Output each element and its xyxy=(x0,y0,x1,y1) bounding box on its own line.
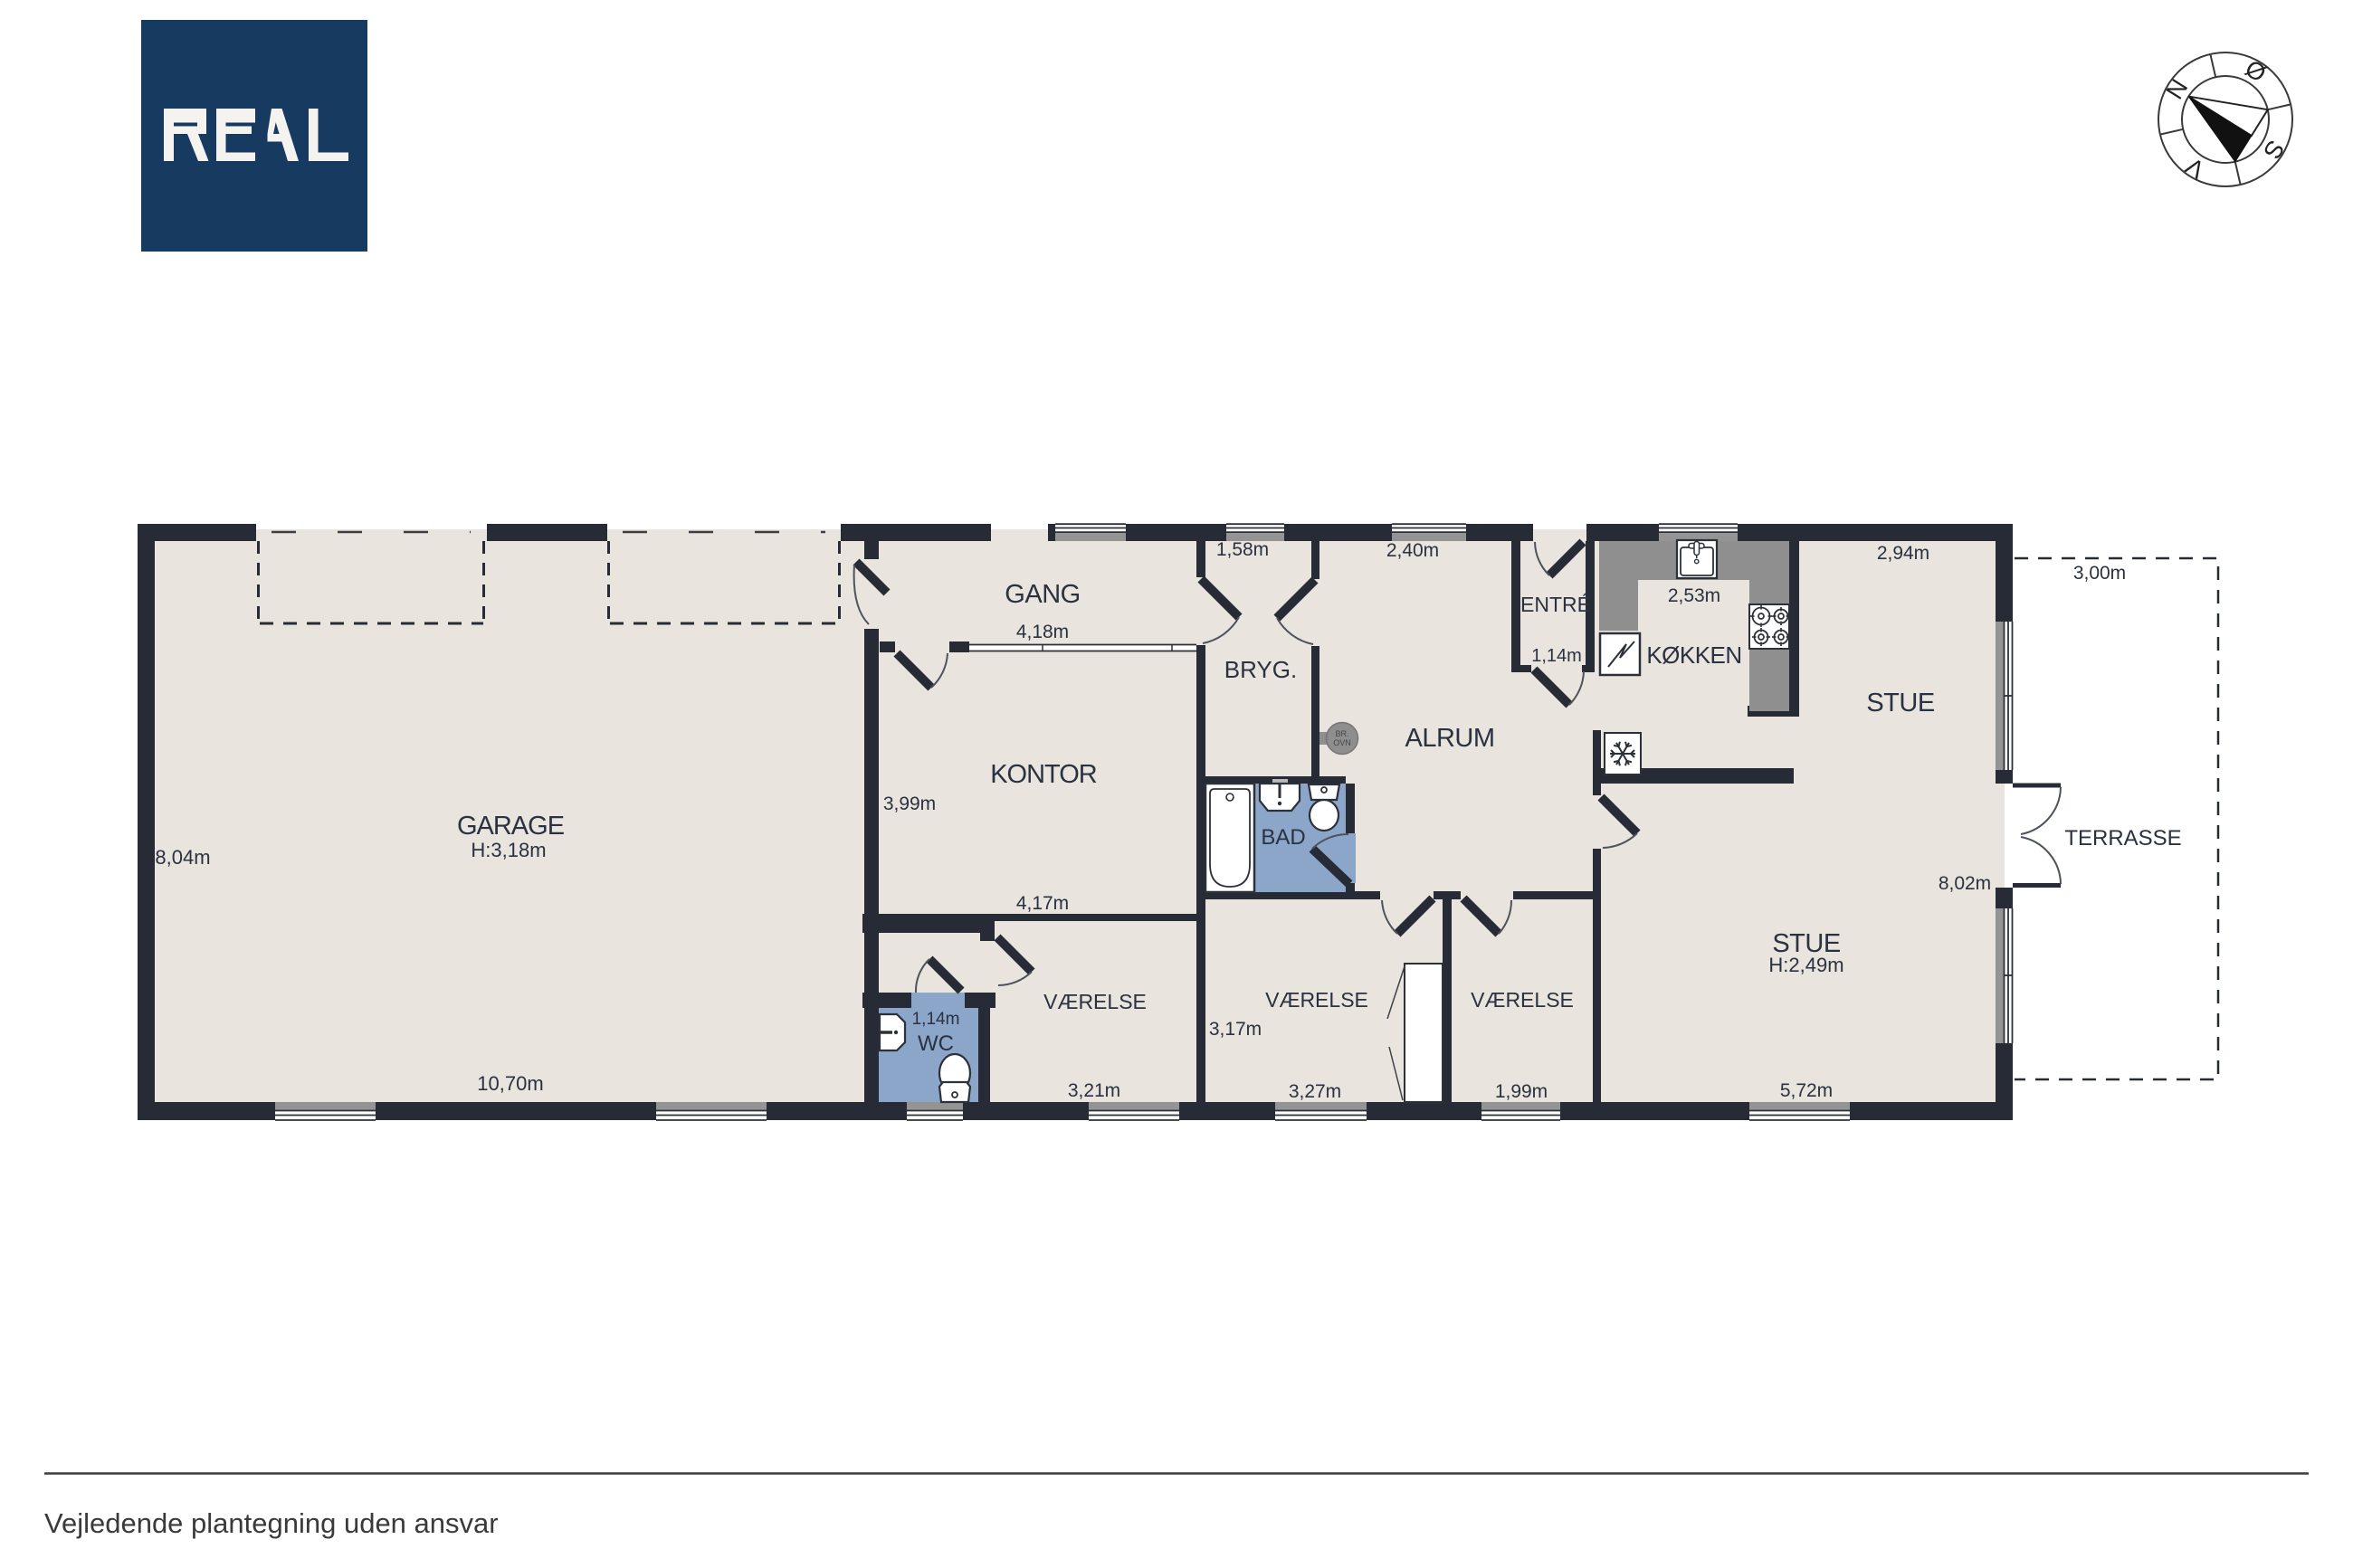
svg-text:3,17m: 3,17m xyxy=(1209,1019,1262,1040)
svg-text:H:3,18m: H:3,18m xyxy=(471,839,546,861)
svg-text:5,72m: 5,72m xyxy=(1780,1080,1833,1101)
svg-text:H:2,49m: H:2,49m xyxy=(1768,954,1843,976)
svg-text:1,14m: 1,14m xyxy=(912,1010,960,1029)
svg-text:STUE: STUE xyxy=(1866,689,1935,717)
svg-text:3,00m: 3,00m xyxy=(2073,563,2126,584)
svg-text:BAD: BAD xyxy=(1261,825,1305,850)
svg-text:KØKKEN: KØKKEN xyxy=(1646,641,1741,669)
svg-text:8,02m: 8,02m xyxy=(1939,873,1991,894)
svg-text:3,21m: 3,21m xyxy=(1068,1080,1120,1101)
svg-text:VÆRELSE: VÆRELSE xyxy=(1471,988,1574,1012)
svg-text:ENTRÉ: ENTRÉ xyxy=(1520,593,1591,616)
svg-text:ALRUM: ALRUM xyxy=(1405,724,1494,753)
svg-text:GANG: GANG xyxy=(1005,580,1080,609)
svg-text:KONTOR: KONTOR xyxy=(990,760,1097,789)
svg-text:3,27m: 3,27m xyxy=(1289,1081,1341,1102)
svg-text:OVN: OVN xyxy=(1333,738,1351,747)
svg-text:3,99m: 3,99m xyxy=(883,794,936,814)
svg-text:GARAGE: GARAGE xyxy=(457,812,565,841)
svg-text:2,94m: 2,94m xyxy=(1877,543,1929,564)
svg-text:BR.: BR. xyxy=(1335,729,1348,738)
svg-text:TERRASSE: TERRASSE xyxy=(2064,826,2181,851)
svg-text:4,17m: 4,17m xyxy=(1016,893,1069,914)
svg-text:VÆRELSE: VÆRELSE xyxy=(1043,990,1147,1013)
svg-text:VÆRELSE: VÆRELSE xyxy=(1265,988,1368,1012)
svg-text:10,70m: 10,70m xyxy=(477,1072,543,1095)
svg-text:2,40m: 2,40m xyxy=(1386,540,1439,561)
svg-text:4,18m: 4,18m xyxy=(1016,622,1069,642)
svg-text:1,14m: 1,14m xyxy=(1531,646,1582,666)
svg-text:2,53m: 2,53m xyxy=(1668,585,1720,606)
svg-text:1,58m: 1,58m xyxy=(1216,539,1269,560)
svg-text:1,99m: 1,99m xyxy=(1495,1081,1548,1102)
svg-text:BRYG.: BRYG. xyxy=(1224,656,1297,683)
svg-text:WC: WC xyxy=(918,1031,954,1056)
svg-text:Vejledende plantegning uden an: Vejledende plantegning uden ansvar xyxy=(44,1507,499,1539)
svg-text:8,04m: 8,04m xyxy=(155,846,210,869)
